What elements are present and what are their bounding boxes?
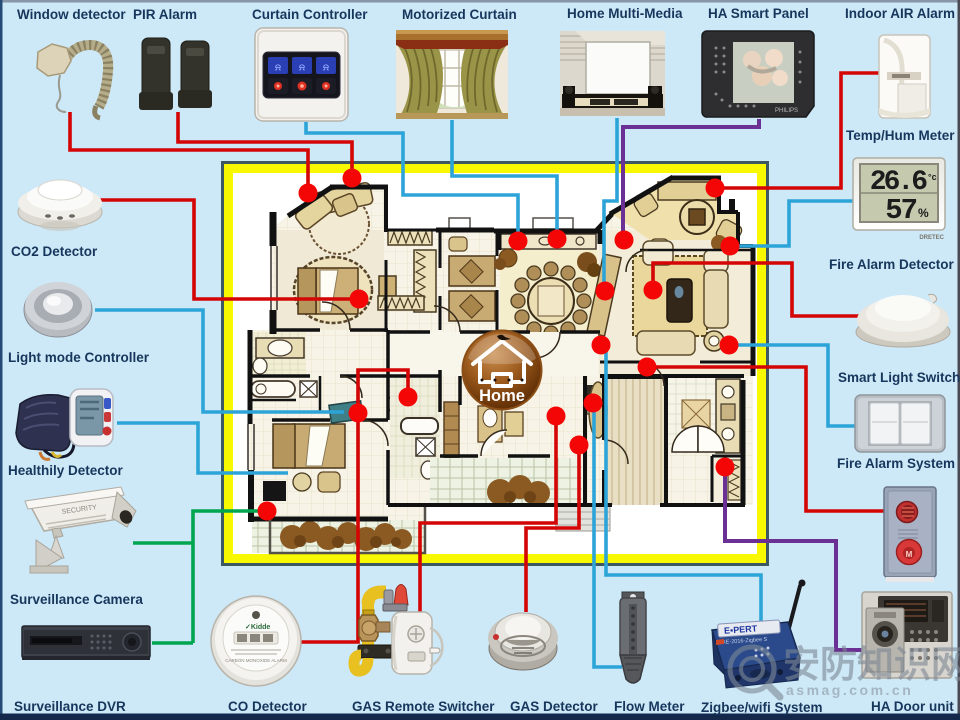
svg-text:CO Detector: CO Detector xyxy=(228,699,308,714)
svg-text:M: M xyxy=(906,550,913,559)
svg-text:Surveillance DVR: Surveillance DVR xyxy=(14,699,126,714)
svg-text:⍾: ⍾ xyxy=(323,62,329,72)
svg-text:安防知识网: 安防知识网 xyxy=(783,644,960,685)
svg-text:Light mode Controller: Light mode Controller xyxy=(8,350,150,365)
svg-text:Home: Home xyxy=(479,387,525,405)
svg-text:°c: °c xyxy=(928,172,937,182)
svg-text:%: % xyxy=(918,206,929,220)
svg-text:Healthily Detector: Healthily Detector xyxy=(8,463,124,478)
svg-text:Flow Meter: Flow Meter xyxy=(614,699,685,714)
svg-text:Home Multi-Media: Home Multi-Media xyxy=(567,6,683,21)
svg-text:PIR Alarm: PIR Alarm xyxy=(133,7,197,22)
svg-text:CO2 Detector: CO2 Detector xyxy=(11,244,98,259)
svg-text:HA Door unit: HA Door unit xyxy=(871,699,954,714)
svg-text:Fire Alarm System: Fire Alarm System xyxy=(837,456,955,471)
svg-text:Zigbee/wifi System: Zigbee/wifi System xyxy=(701,700,823,715)
svg-text:GAS Detector: GAS Detector xyxy=(510,699,599,714)
svg-text:⍾: ⍾ xyxy=(299,62,305,72)
svg-text:GAS Remote Switcher: GAS Remote Switcher xyxy=(352,699,495,714)
svg-text:PHILIPS: PHILIPS xyxy=(775,108,798,114)
svg-text:Curtain Controller: Curtain Controller xyxy=(252,7,368,22)
svg-text:57: 57 xyxy=(885,194,916,227)
svg-text:Surveillance Camera: Surveillance Camera xyxy=(10,592,143,607)
svg-text:Window detector: Window detector xyxy=(17,7,126,22)
svg-text:Temp/Hum Meter: Temp/Hum Meter xyxy=(846,128,955,143)
svg-text:Indoor AIR Alarm: Indoor AIR Alarm xyxy=(845,6,955,21)
svg-text:Fire Alarm Detector: Fire Alarm Detector xyxy=(829,257,955,272)
svg-text:Smart Light Switch: Smart Light Switch xyxy=(838,370,960,385)
svg-text:HA Smart Panel: HA Smart Panel xyxy=(708,6,809,21)
svg-text:CARBON MONOXIDE ALARM: CARBON MONOXIDE ALARM xyxy=(225,658,287,663)
svg-text:asmag.com.cn: asmag.com.cn xyxy=(786,682,913,698)
svg-text:Motorized Curtain: Motorized Curtain xyxy=(402,7,517,22)
svg-text:⍾: ⍾ xyxy=(275,62,281,72)
svg-text:DRETEC: DRETEC xyxy=(919,235,944,241)
svg-text:✓Kidde: ✓Kidde xyxy=(245,624,270,631)
